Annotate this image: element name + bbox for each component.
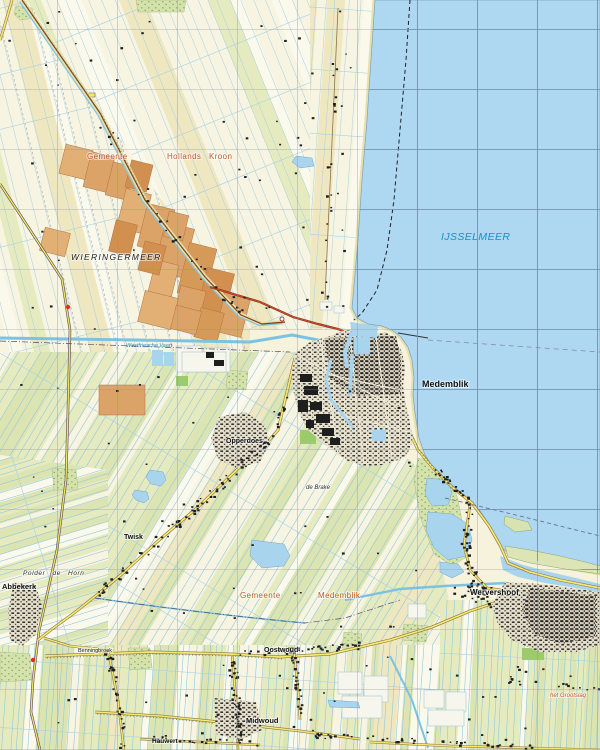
svg-text:Gemeente: Gemeente [240, 591, 281, 600]
svg-text:Twisk: Twisk [124, 534, 143, 541]
svg-text:Hollands: Hollands [167, 152, 201, 161]
svg-text:IJSSELMEER: IJSSELMEER [441, 231, 510, 243]
svg-text:Polder de Horn: Polder de Horn [23, 570, 85, 577]
svg-text:Opperdoes: Opperdoes [226, 438, 263, 445]
svg-text:Benningbroek: Benningbroek [78, 648, 112, 654]
svg-text:Medemblik: Medemblik [422, 379, 470, 389]
svg-text:het Grootslag: het Grootslag [550, 693, 587, 699]
svg-text:Wervershoof: Wervershoof [470, 588, 519, 597]
svg-text:Kroon: Kroon [209, 152, 232, 161]
svg-text:Hauwert: Hauwert [152, 738, 178, 745]
svg-text:Abbekerk: Abbekerk [2, 582, 37, 591]
svg-text:WIERINGERMEER: WIERINGERMEER [71, 252, 162, 262]
svg-text:Medemblik: Medemblik [318, 591, 361, 600]
svg-text:Midwoud: Midwoud [246, 716, 279, 725]
svg-text:de Brake: de Brake [306, 485, 331, 491]
svg-text:Westfriesche Vaart: Westfriesche Vaart [126, 343, 173, 349]
svg-text:Gemeente: Gemeente [87, 152, 128, 161]
svg-text:Oostwoud: Oostwoud [264, 647, 298, 654]
